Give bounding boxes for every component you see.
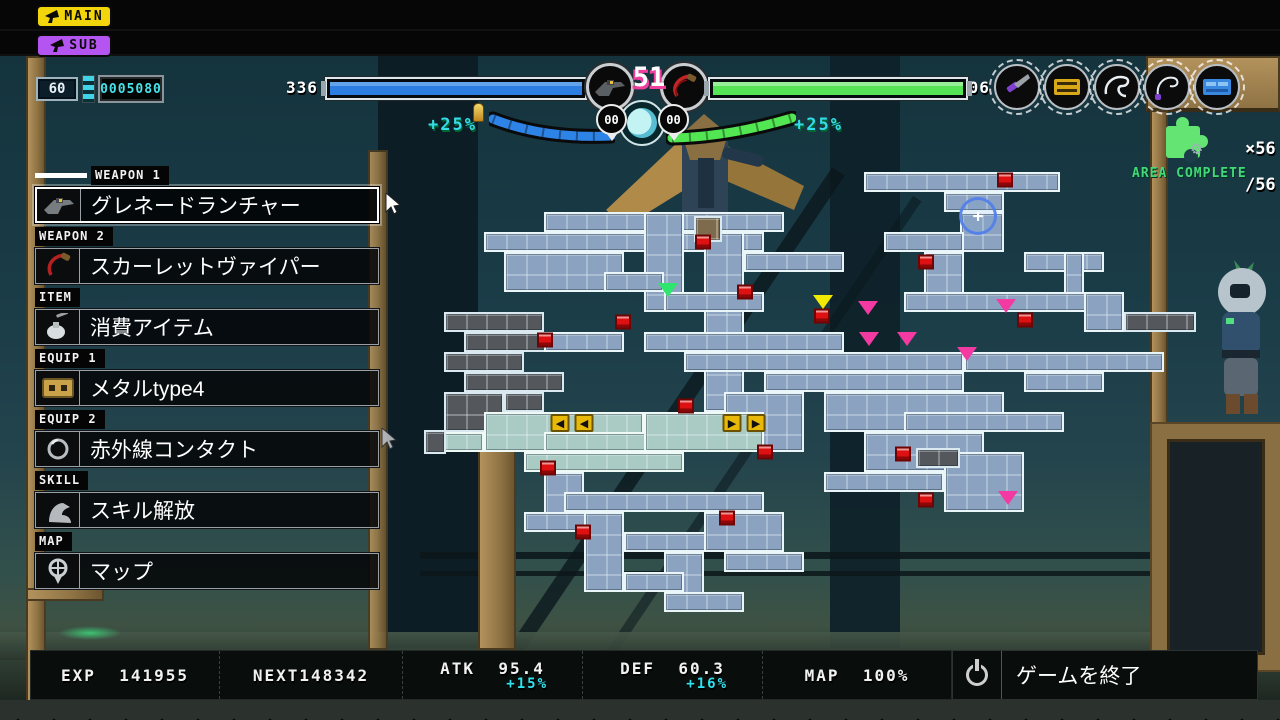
next-stat: NEXT148342 xyxy=(219,651,402,699)
map-marker-save xyxy=(540,461,556,476)
map-marker-cursor[interactable]: + xyxy=(959,197,997,235)
cassette-icon xyxy=(36,371,80,405)
menu-item-label: 赤外線コンタクト xyxy=(80,432,378,466)
map-room xyxy=(864,172,1060,192)
weapon2-circle xyxy=(660,63,708,111)
map-room xyxy=(704,232,744,412)
def-buff: +16% xyxy=(686,678,728,691)
map-marker-save xyxy=(918,493,934,508)
exp-stat: EXP 141955 xyxy=(31,651,219,699)
def-label: DEF xyxy=(620,659,655,678)
map-room xyxy=(624,572,684,592)
atk-label: ATK xyxy=(440,659,475,678)
map-room xyxy=(564,492,764,512)
menu-row-map[interactable]: マップ xyxy=(35,553,379,589)
yellow-device-icon xyxy=(1053,77,1081,97)
map-marker-arrR: ▶ xyxy=(747,414,766,432)
menu-tag: SKILL xyxy=(35,471,88,490)
health-bar-right-fill xyxy=(713,82,963,95)
counter-bubble-left: 00 xyxy=(596,104,627,135)
menu-item-label: グレネードランチャー xyxy=(81,189,377,221)
atk-value: 95.4 xyxy=(498,659,545,678)
menu-row-equip2[interactable]: 赤外線コンタクト xyxy=(35,431,379,467)
next-label: NEXT xyxy=(253,666,300,685)
map-label: MAP xyxy=(805,666,840,685)
grenade-launcher-icon xyxy=(593,76,627,98)
item-slot-cable[interactable] xyxy=(1094,64,1140,110)
map-room xyxy=(904,412,1064,432)
map-marker-save xyxy=(997,173,1013,188)
map-marker-pink xyxy=(957,347,977,361)
map-room xyxy=(424,430,446,454)
map-room xyxy=(1024,372,1104,392)
menu-row-equip1[interactable]: メタルtype4 xyxy=(35,370,379,406)
map-room xyxy=(744,252,844,272)
map-marker-save xyxy=(537,333,553,348)
menu-item-label: スキル解放 xyxy=(80,493,378,527)
map-marker-save xyxy=(737,285,753,300)
map-marker-green xyxy=(658,283,678,297)
def-value: 60.3 xyxy=(678,659,725,678)
area-complete-label: AREA COMPLETE xyxy=(1132,166,1247,181)
orb-core xyxy=(627,108,657,138)
map-room xyxy=(764,372,964,392)
map-marker-save xyxy=(895,447,911,462)
def-stat: DEF 60.3 +16% xyxy=(582,651,762,699)
equipment-menu: WEAPON 1 グレネードランチャー WEAPON 2 スカーレットヴァイパー… xyxy=(35,167,379,594)
knife-icon xyxy=(1002,72,1032,102)
health-bar-right xyxy=(708,77,968,100)
contact-lens-icon xyxy=(36,432,80,466)
selection-dash xyxy=(35,173,87,178)
menu-item-label: 消費アイテム xyxy=(80,310,378,344)
item-slot-knife[interactable] xyxy=(994,64,1040,110)
item-slot-whip[interactable] xyxy=(1144,64,1190,110)
menu-row-item[interactable]: 消費アイテム xyxy=(35,309,379,345)
map-room xyxy=(544,332,624,352)
health-bar-left xyxy=(325,77,587,100)
map-marker-pink xyxy=(998,491,1018,505)
segment-gauge xyxy=(82,75,95,103)
map-room xyxy=(664,592,744,612)
map-marker-pink xyxy=(859,332,879,346)
hud-top-bar: 60 0005080 336 51 306 xyxy=(0,56,1280,156)
whip-coil-icon xyxy=(1152,72,1182,102)
bottom-stats-bar: EXP 141955 NEXT148342 ATK 95.4 +15% DEF … xyxy=(30,650,952,700)
map-room xyxy=(704,512,784,552)
buff-right: +25% xyxy=(794,115,843,135)
map-value: 100% xyxy=(863,666,910,685)
menu-section-weapon1: WEAPON 1 グレネードランチャー xyxy=(35,167,379,223)
menu-item-label: スカーレットヴァイパー xyxy=(80,249,378,283)
map-marker-save xyxy=(615,315,631,330)
menu-section-equip2: EQUIP 2 赤外線コンタクト xyxy=(35,411,379,467)
counter-bubble-right: 00 xyxy=(658,104,689,135)
map-room xyxy=(504,392,544,412)
potion-icon xyxy=(36,310,80,344)
score-counter: 0005080 xyxy=(98,75,164,103)
menu-tag: WEAPON 2 xyxy=(35,227,113,246)
atk-buff: +15% xyxy=(506,678,548,691)
power-icon-box[interactable] xyxy=(953,651,1002,699)
map-marker-save xyxy=(918,255,934,270)
quit-game-button[interactable]: ゲームを終了 xyxy=(952,650,1258,700)
menu-tag: ITEM xyxy=(35,288,80,307)
blue-card-icon xyxy=(1202,77,1232,97)
menu-tag: MAP xyxy=(35,532,72,551)
map-marker-pink xyxy=(996,299,1016,313)
map-marker-save xyxy=(1017,313,1033,328)
map-room xyxy=(444,312,544,332)
map-room xyxy=(964,352,1164,372)
map-room xyxy=(724,552,804,572)
cable-icon xyxy=(1102,72,1132,102)
map-room xyxy=(824,472,944,492)
map-marker-arrR: ▶ xyxy=(723,414,742,432)
map-room xyxy=(916,448,960,468)
exp-label: EXP xyxy=(61,666,96,685)
map-marker-arrL: ◀ xyxy=(551,414,570,432)
mouse-cursor xyxy=(385,193,402,219)
menu-section-weapon2: WEAPON 2 スカーレットヴァイパー xyxy=(35,228,379,284)
quit-game-label: ゲームを終了 xyxy=(1002,651,1257,699)
item-slot-device[interactable] xyxy=(1044,64,1090,110)
atk-stat: ATK 95.4 +15% xyxy=(402,651,582,699)
bottom-sawtooth-trim xyxy=(0,700,1280,720)
health-bar-left-fill xyxy=(330,82,582,95)
menu-item-label: メタルtype4 xyxy=(80,371,378,405)
map-room xyxy=(604,272,664,292)
menu-row-weapon2[interactable]: スカーレットヴァイパー xyxy=(35,248,379,284)
menu-section-skill: SKILL スキル解放 xyxy=(35,472,379,528)
map-marker-save xyxy=(719,511,735,526)
map-marker-pink xyxy=(858,301,878,315)
map-marker-save xyxy=(695,235,711,250)
item-slot-card[interactable] xyxy=(1194,64,1240,110)
grenade-launcher-icon xyxy=(37,189,81,221)
exp-value: 141955 xyxy=(119,666,189,685)
gear-icon: ⚙ xyxy=(1190,140,1203,158)
map-room xyxy=(644,332,844,352)
menu-row-skill[interactable]: スキル解放 xyxy=(35,492,379,528)
map-room xyxy=(1124,312,1196,332)
area-status: ×56 ∕56 ⚙ AREA COMPLETE xyxy=(1128,122,1258,190)
flex-arm-icon xyxy=(36,493,80,527)
ammo-count-left: 336 xyxy=(286,78,318,97)
map-room xyxy=(684,352,964,372)
map-room xyxy=(444,352,524,372)
map-marker-pink xyxy=(897,332,917,346)
menu-section-map: MAP マップ xyxy=(35,533,379,589)
power-icon xyxy=(966,664,988,686)
map-marker-save xyxy=(678,399,694,414)
map-pin-icon xyxy=(36,554,80,588)
map-marker-save xyxy=(757,445,773,460)
red-whip-icon xyxy=(669,72,699,102)
menu-section-item: ITEM 消費アイテム xyxy=(35,289,379,345)
menu-tag: EQUIP 1 xyxy=(35,349,105,368)
secondary-cursor xyxy=(381,428,398,454)
menu-tag: WEAPON 1 xyxy=(91,166,169,185)
menu-row-weapon1[interactable]: グレネードランチャー xyxy=(35,187,379,223)
map-room xyxy=(464,372,564,392)
menu-item-label: マップ xyxy=(80,554,378,588)
map-marker-arrL: ◀ xyxy=(575,414,594,432)
map-marker-yellow xyxy=(813,295,833,309)
map-stat: MAP 100% xyxy=(762,651,951,699)
level-box: 60 xyxy=(36,77,78,101)
next-value: 148342 xyxy=(299,666,369,685)
menu-section-equip1: EQUIP 1 メタルtype4 xyxy=(35,350,379,406)
buff-left: +25% xyxy=(428,115,477,135)
center-level-value: 51 xyxy=(631,62,667,93)
map-room xyxy=(1084,292,1124,332)
red-whip-icon xyxy=(36,249,80,283)
map-room xyxy=(884,232,964,252)
map-marker-save xyxy=(575,525,591,540)
menu-tag: EQUIP 2 xyxy=(35,410,105,429)
map-marker-save xyxy=(814,309,830,324)
